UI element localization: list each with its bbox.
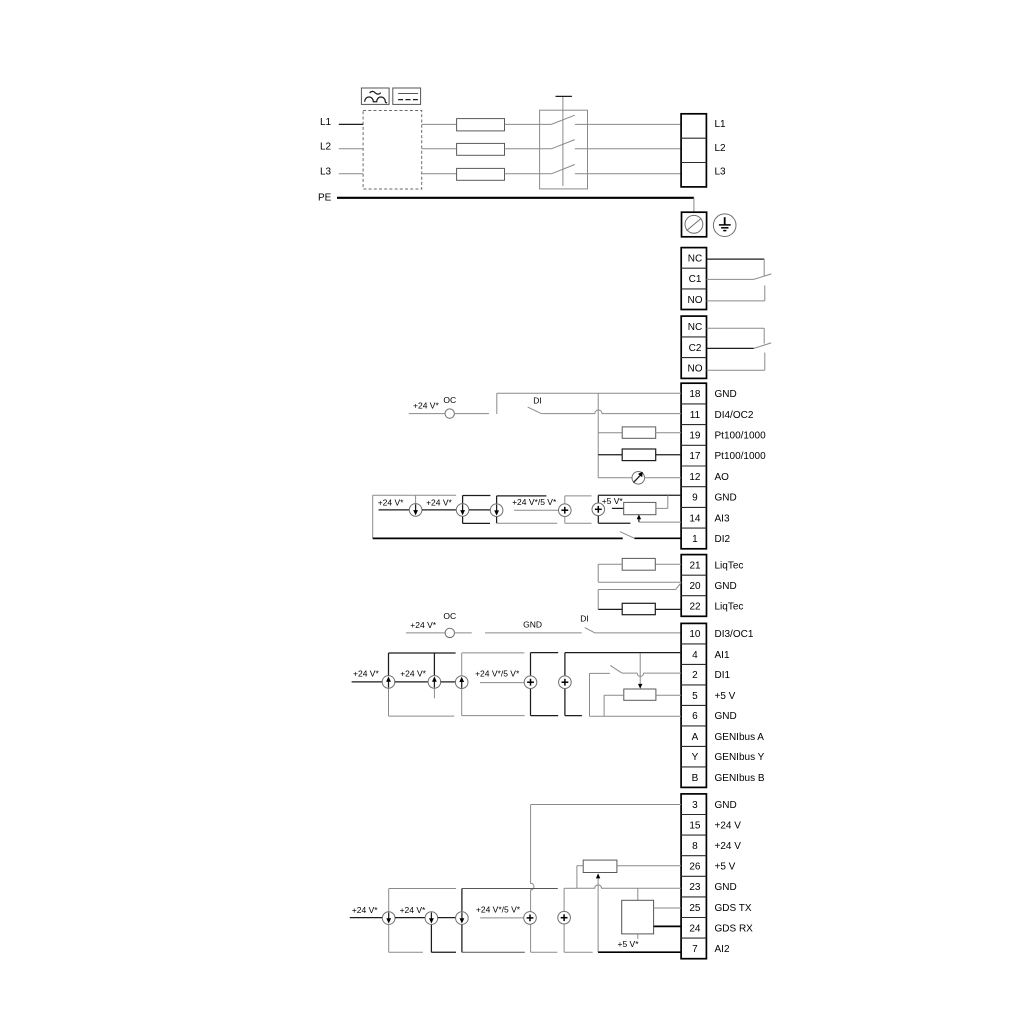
svg-text:GND: GND [715,711,737,722]
svg-text:15: 15 [689,820,701,831]
svg-text:NC: NC [688,254,702,265]
svg-text:+24 V*: +24 V* [426,497,452,507]
svg-text:PE: PE [318,192,332,203]
svg-text:LiqTec: LiqTec [715,561,744,572]
svg-text:+5 V: +5 V [715,691,736,702]
svg-text:+24 V*: +24 V* [400,905,426,915]
svg-text:L2: L2 [320,141,332,152]
svg-text:+24 V*: +24 V* [410,620,436,630]
svg-text:25: 25 [689,903,701,914]
svg-text:24: 24 [689,923,701,934]
svg-text:DI3/OC1: DI3/OC1 [715,629,754,640]
svg-text:1: 1 [692,534,698,545]
svg-text:3: 3 [692,800,698,811]
svg-text:+24 V: +24 V [715,820,742,831]
svg-text:+24 V*/5 V*: +24 V*/5 V* [512,497,557,507]
svg-text:Y: Y [692,752,699,763]
svg-text:22: 22 [689,602,701,613]
svg-text:+24 V*: +24 V* [413,401,439,411]
svg-text:L3: L3 [320,166,332,177]
svg-text:L2: L2 [715,143,727,154]
svg-text:AI1: AI1 [715,650,730,661]
svg-text:A: A [692,732,699,743]
svg-text:23: 23 [689,882,701,893]
svg-text:AI3: AI3 [715,513,730,524]
svg-text:GENIbus Y: GENIbus Y [715,752,765,763]
svg-text:2: 2 [692,670,698,681]
svg-text:GDS TX: GDS TX [715,903,752,914]
svg-text:AO: AO [715,472,730,483]
svg-text:+5 V*: +5 V* [618,939,640,949]
svg-text:GDS RX: GDS RX [715,923,754,934]
svg-text:L1: L1 [320,117,332,128]
svg-text:+24 V*: +24 V* [400,668,426,678]
svg-text:14: 14 [689,513,701,524]
svg-text:DI: DI [533,396,542,406]
svg-text:11: 11 [690,410,701,421]
svg-text:AI2: AI2 [715,944,730,955]
svg-text:C1: C1 [689,274,702,285]
svg-text:DI: DI [580,614,589,624]
svg-text:DI4/OC2: DI4/OC2 [715,410,754,421]
svg-text:8: 8 [692,841,698,852]
svg-text:9: 9 [692,493,698,504]
svg-text:GENIbus A: GENIbus A [715,732,765,743]
svg-text:DI1: DI1 [715,670,731,681]
svg-text:GND: GND [715,800,737,811]
svg-text:NO: NO [688,364,703,375]
svg-text:OC: OC [443,611,456,621]
svg-text:+24 V*: +24 V* [352,905,378,915]
svg-text:+24 V*: +24 V* [353,668,379,678]
svg-text:L3: L3 [715,167,727,178]
svg-text:+24 V*/5 V*: +24 V*/5 V* [476,904,521,914]
svg-text:17: 17 [689,451,701,462]
svg-text:4: 4 [692,650,698,661]
svg-text:GND: GND [523,620,542,630]
svg-text:+24 V: +24 V [715,841,742,852]
svg-text:GND: GND [715,389,737,400]
svg-text:GENIbus B: GENIbus B [715,773,765,784]
svg-text:20: 20 [689,581,701,592]
svg-text:NO: NO [688,295,703,306]
svg-text:+24 V*/5 V*: +24 V*/5 V* [475,668,520,678]
svg-text:DI2: DI2 [715,534,731,545]
svg-text:GND: GND [715,882,737,893]
svg-text:19: 19 [689,431,701,442]
svg-text:18: 18 [689,389,701,400]
svg-text:L1: L1 [715,119,727,130]
svg-text:+5 V: +5 V [715,862,736,873]
svg-text:Pt100/1000: Pt100/1000 [715,431,767,442]
svg-text:OC: OC [443,395,456,405]
svg-text:GND: GND [715,581,737,592]
svg-text:Pt100/1000: Pt100/1000 [715,451,767,462]
svg-text:GND: GND [715,493,737,504]
svg-text:10: 10 [689,629,701,640]
svg-text:5: 5 [692,691,698,702]
svg-text:B: B [692,773,699,784]
svg-text:21: 21 [689,561,701,572]
svg-text:+5 V*: +5 V* [602,496,624,506]
svg-text:12: 12 [689,472,701,483]
svg-text:C2: C2 [689,343,702,354]
svg-text:LiqTec: LiqTec [715,602,744,613]
svg-text:+24 V*: +24 V* [378,497,404,507]
svg-text:7: 7 [692,944,698,955]
svg-text:6: 6 [692,711,698,722]
svg-text:26: 26 [689,862,701,873]
svg-text:NC: NC [688,322,702,333]
